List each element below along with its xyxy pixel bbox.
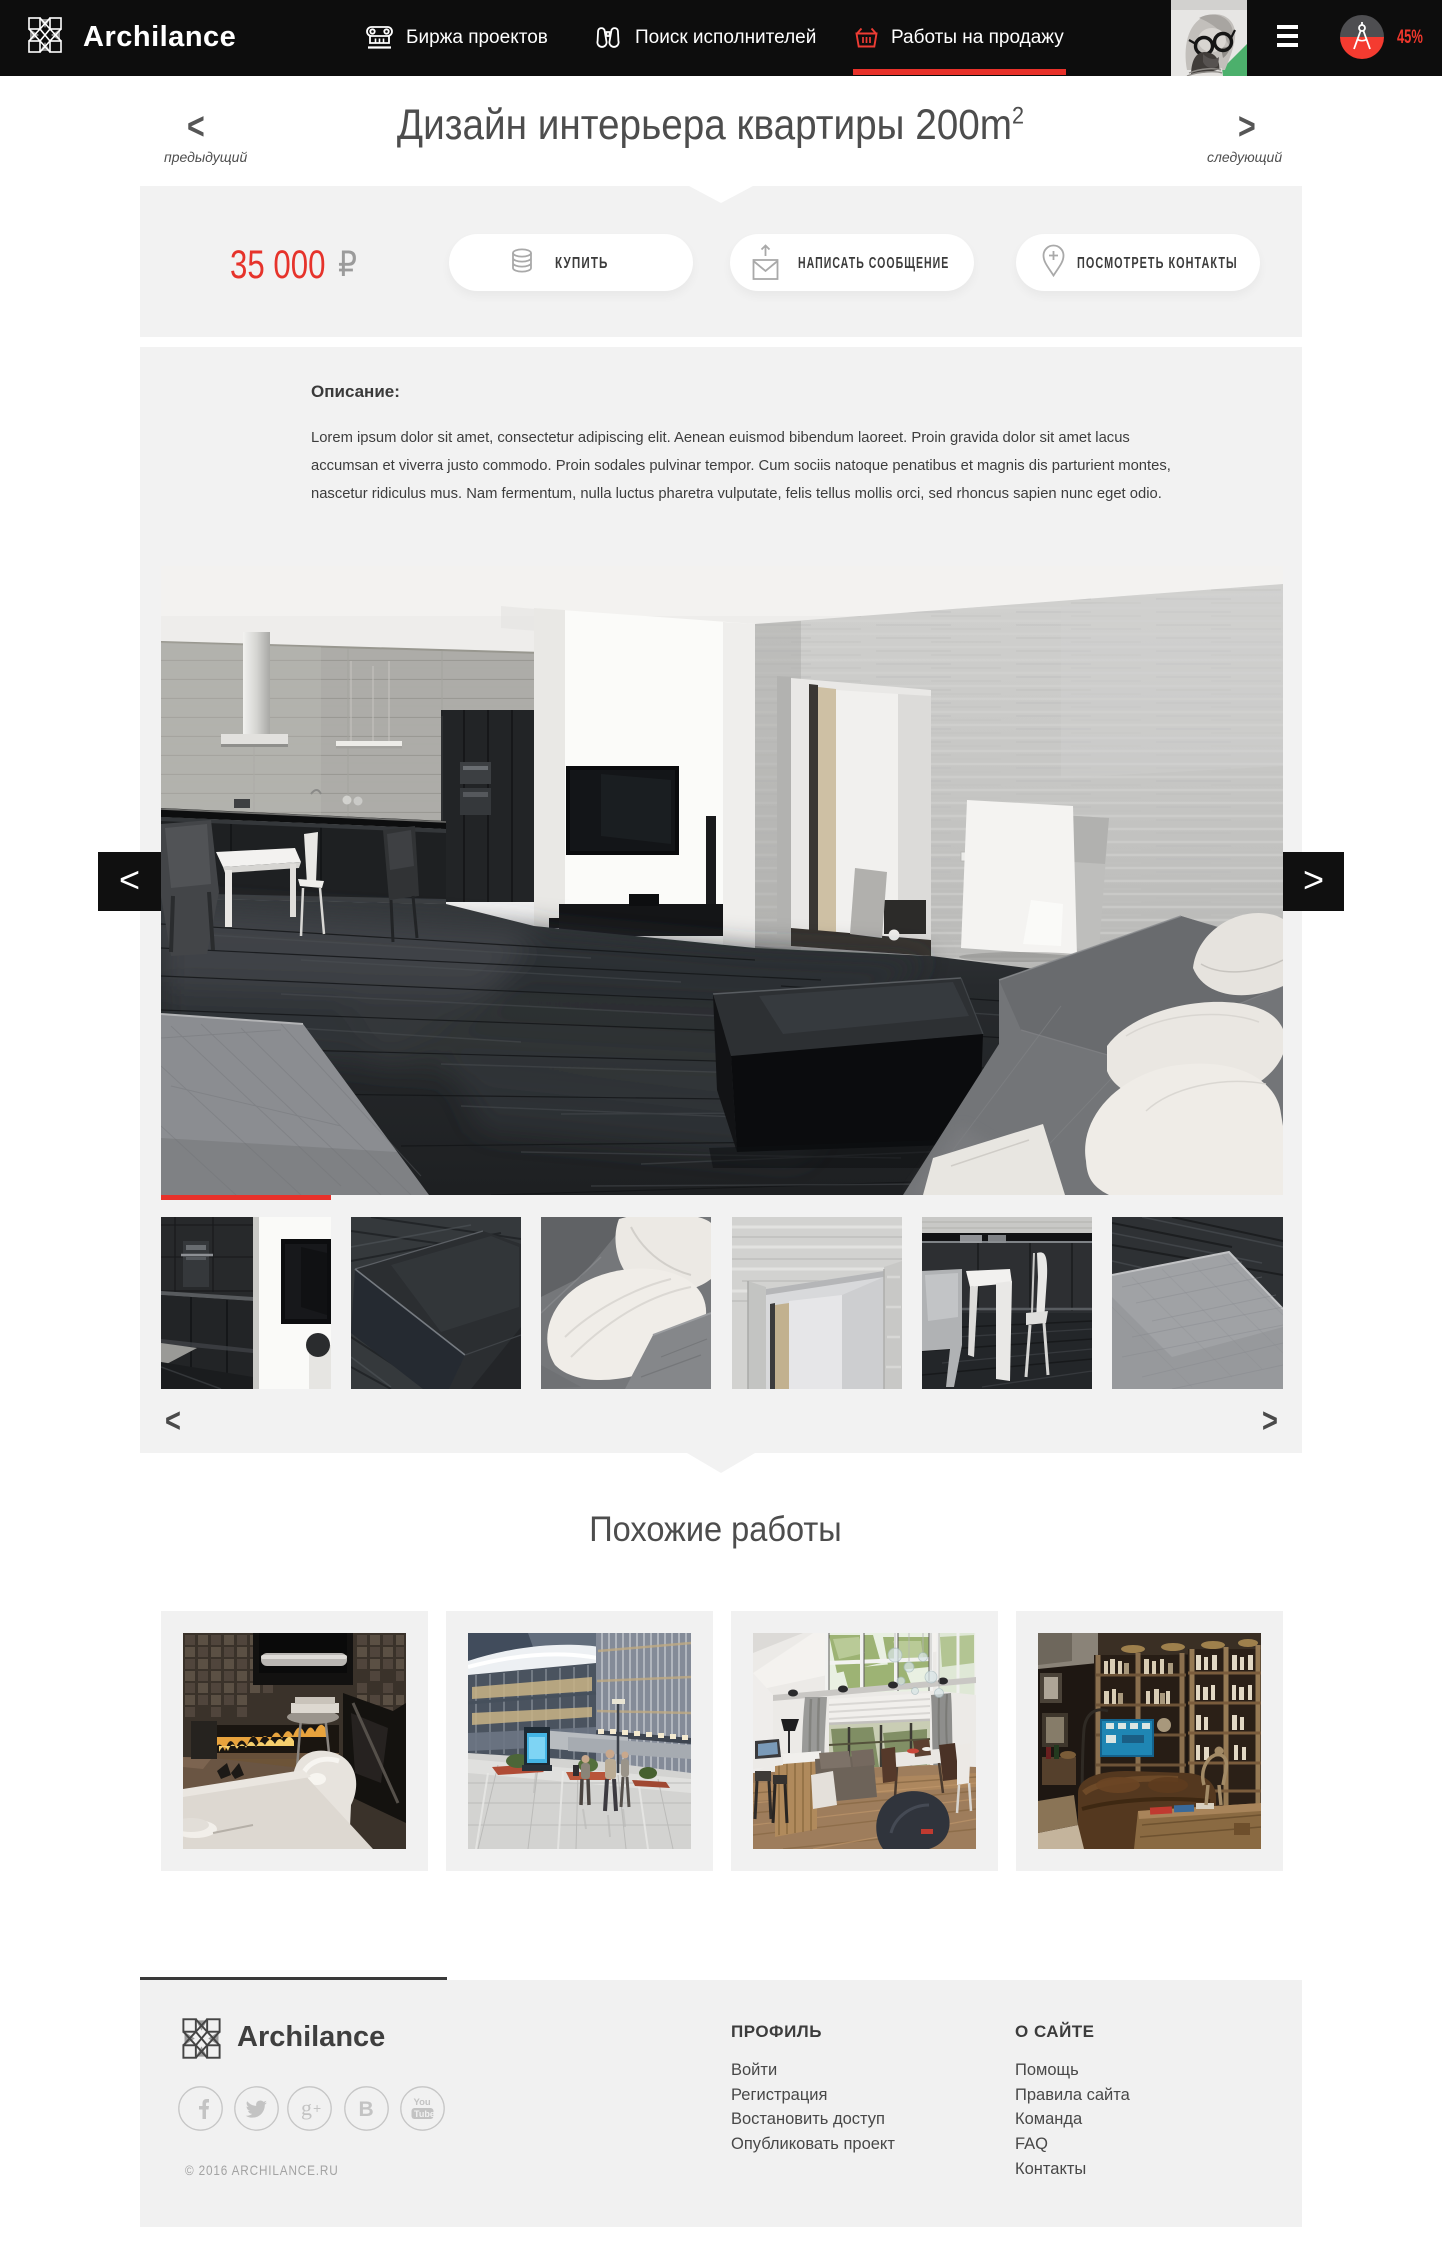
svg-text:You: You bbox=[414, 2097, 431, 2108]
svg-text:g: g bbox=[301, 2095, 312, 2120]
svg-text:B: B bbox=[359, 2098, 374, 2121]
svg-text:Tube: Tube bbox=[414, 2109, 435, 2119]
svg-text:+: + bbox=[313, 2100, 321, 2116]
